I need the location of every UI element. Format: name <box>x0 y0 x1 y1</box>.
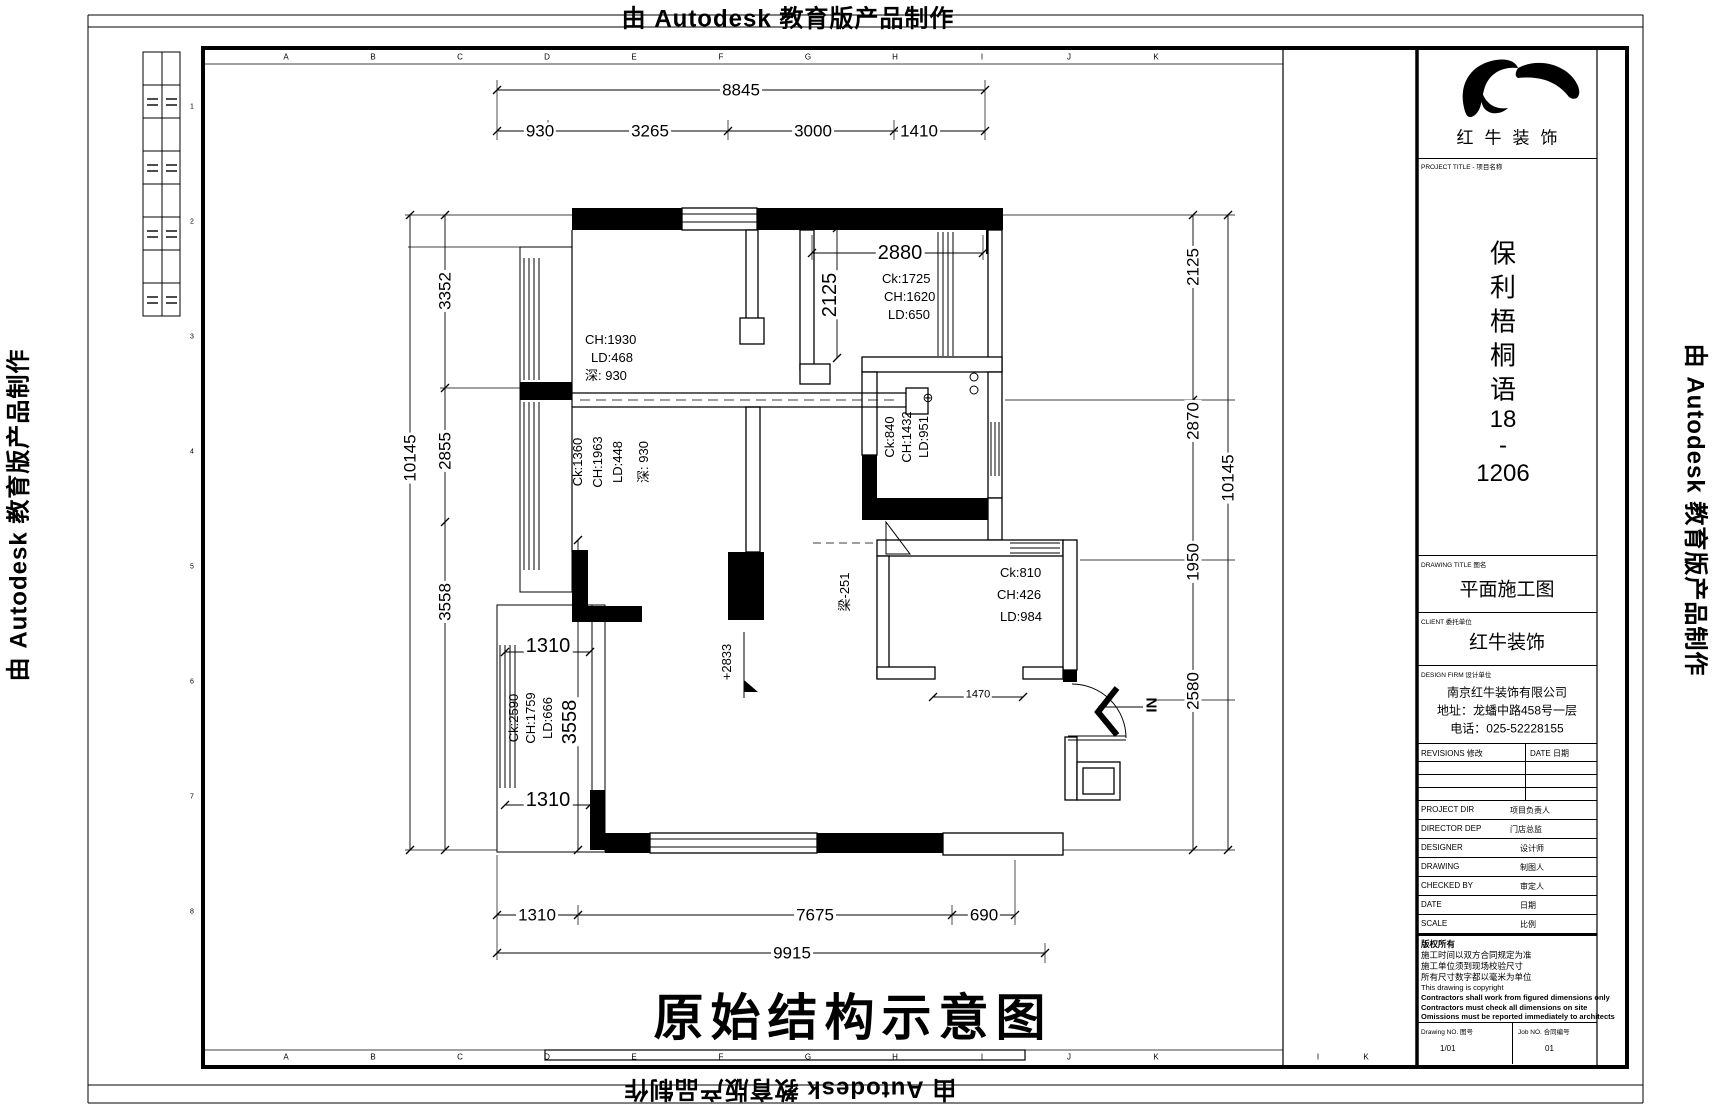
title-underline <box>545 1050 1025 1060</box>
tb-divider <box>1525 743 1526 800</box>
dim-right-total: 10145 <box>1220 452 1237 503</box>
dim-right-seg: 2125 <box>1185 246 1202 288</box>
kitchen-label: LD:650 <box>888 308 930 322</box>
field-cn: 制图人 <box>1520 862 1544 873</box>
room1-label: LD:468 <box>591 351 633 365</box>
entry-in-label: IN <box>1144 698 1161 713</box>
field-label: CHECKED BY <box>1421 881 1473 890</box>
room3-label: LD:984 <box>1000 610 1042 624</box>
tb-line <box>1417 555 1597 556</box>
note-line: 施工单位须到现场校验尺寸 <box>1421 962 1523 971</box>
dim-balcony-bottom: 1310 <box>524 790 573 810</box>
dim-bottom-total: 9915 <box>771 945 813 962</box>
pipe-circles <box>970 373 978 394</box>
room1-label: CH:1930 <box>585 333 636 347</box>
level-label: +2833 <box>720 644 734 681</box>
dim-top-seg: 1410 <box>898 123 940 140</box>
grid-letter: K <box>1363 1053 1368 1062</box>
field-cn: 设计师 <box>1520 843 1544 854</box>
tb-line <box>1417 612 1597 613</box>
dim-bottom-seg: 1310 <box>516 907 558 924</box>
dim-right-seg: 2580 <box>1185 670 1202 712</box>
kitchen-label: Ck:1725 <box>882 272 930 286</box>
design-firm-line: 电话：025-52228155 <box>1450 720 1563 737</box>
tb-line <box>1417 787 1597 788</box>
drawing-title-label: DRAWING TITLE 图名 <box>1421 559 1486 569</box>
room2-label: Ck:1360 <box>571 438 585 486</box>
tb-line <box>1417 800 1597 801</box>
project-name-char: 梧 <box>1490 302 1516 339</box>
field-label: PROJECT DIR <box>1421 805 1474 814</box>
grid-letter: F <box>719 1053 724 1062</box>
project-name-char: 桐 <box>1490 336 1516 373</box>
brand-name: 红牛装饰 <box>1446 124 1569 149</box>
note-line: 施工时间以双方合同规定为准 <box>1421 951 1532 960</box>
note-line: This drawing is copyright <box>1421 984 1504 992</box>
project-name-char: 1206 <box>1476 460 1529 488</box>
note-line: Contractors shall work from figured dime… <box>1421 994 1610 1002</box>
dim-right-seg: 1950 <box>1185 541 1202 583</box>
tb-line-thick <box>1417 933 1597 936</box>
sheet-borders <box>88 15 1643 1103</box>
project-name-char: 保 <box>1490 234 1516 271</box>
grid-letter: E <box>631 1053 636 1062</box>
window-glazing <box>500 214 1060 847</box>
design-firm-line: 地址：龙蟠中路458号一层 <box>1437 702 1577 719</box>
grid-letter: J <box>1067 53 1071 62</box>
wall-lines <box>572 230 906 552</box>
grid-letter: A <box>283 1053 288 1062</box>
design-firm-label: DESIGN FIRM 设计单位 <box>1421 669 1491 679</box>
grid-letter: I <box>1317 1053 1319 1062</box>
bath-symbol: ⊕ <box>923 391 934 405</box>
grid-letter: C <box>457 53 463 62</box>
drawing-no-label: Drawing NO. 图号 <box>1421 1026 1473 1036</box>
grid-letter: H <box>892 1053 898 1062</box>
tb-line <box>1417 761 1597 762</box>
grid-letter: B <box>370 1053 375 1062</box>
grid-letter: J <box>1067 1053 1071 1062</box>
tb-line <box>1417 1022 1597 1023</box>
watermark-bottom: 由 Autodesk 教育版产品制作 <box>624 1075 957 1110</box>
dim-bottom-seg: 690 <box>968 907 1000 924</box>
kitchen-label: CH:1620 <box>884 290 935 304</box>
dim-top-seg: 930 <box>524 123 556 140</box>
bath-label: Ck:840 <box>883 416 897 457</box>
project-name-char: 18 <box>1490 406 1517 434</box>
grid-letter: G <box>805 53 811 62</box>
job-no-value: 01 <box>1545 1044 1554 1053</box>
dim-bottom-seg: 7675 <box>794 907 836 924</box>
dim-balcony-top: 1310 <box>524 636 573 656</box>
entry-door <box>1068 684 1143 740</box>
dim-left-seg: 3558 <box>437 581 454 623</box>
client-label: CLIENT 委托单位 <box>1421 616 1472 626</box>
date-label: DATE 日期 <box>1530 748 1569 759</box>
room3-label: CH:426 <box>997 588 1041 602</box>
client-name: 红牛装饰 <box>1469 628 1545 655</box>
tb-line <box>1417 743 1597 744</box>
balcony-label: LD:666 <box>541 697 555 739</box>
grid-letter: K <box>1153 1053 1158 1062</box>
drawing-title: 平面施工图 <box>1459 575 1554 602</box>
grid-number: 7 <box>190 794 194 801</box>
field-label: DIRECTOR DEP <box>1421 824 1481 833</box>
watermark-top: 由 Autodesk 教育版产品制作 <box>622 0 955 34</box>
note-line: 所有尺寸数字都以毫米为单位 <box>1421 973 1532 982</box>
tb-line <box>1417 774 1597 775</box>
field-cn: 比例 <box>1520 919 1536 930</box>
tb-line <box>1417 914 1597 915</box>
grid-letter: A <box>283 53 288 62</box>
field-cn: 审定人 <box>1520 881 1544 892</box>
field-label: DATE <box>1421 900 1442 909</box>
drawing-sheet: 由 Autodesk 教育版产品制作 由 Autodesk 教育版产品制作 由 … <box>0 0 1723 1115</box>
field-label: SCALE <box>1421 919 1447 928</box>
project-name-char: 语 <box>1490 370 1516 407</box>
bath-label: LD:951 <box>917 416 931 458</box>
grid-number: 3 <box>190 334 194 341</box>
note-line: 版权所有 <box>1421 940 1455 949</box>
grid-number: 6 <box>190 679 194 686</box>
grid-letter: G <box>805 1053 811 1062</box>
grid-letter: K <box>1153 53 1158 62</box>
walls-outline <box>650 208 1120 855</box>
balcony-label: CH:1759 <box>524 692 538 743</box>
revision-strip <box>143 52 180 316</box>
revisions-label: REVISIONS 修改 <box>1421 748 1483 759</box>
watermark-right: 由 Autodesk 教育版产品制作 <box>1681 344 1716 677</box>
note-line: Omissions must be reported immediately t… <box>1421 1013 1615 1021</box>
grid-letter: D <box>544 53 550 62</box>
grid-letter: E <box>631 53 636 62</box>
tb-line <box>1417 895 1597 896</box>
dim-kitchen-width: 2880 <box>876 243 925 263</box>
note-line: Contractors must check all dimensions on… <box>1421 1004 1587 1012</box>
grid-letter: B <box>370 53 375 62</box>
dim-right-seg: 2870 <box>1185 400 1202 442</box>
project-title-label: PROJECT TITLE - 项目名称 <box>1421 161 1502 171</box>
field-label: DESIGNER <box>1421 843 1463 852</box>
tb-line <box>1417 819 1597 820</box>
dim-balcony-height: 3558 <box>560 698 580 747</box>
drawing-no-value: 1/01 <box>1440 1044 1456 1053</box>
field-cn: 项目负责人 <box>1510 805 1550 816</box>
grid-number: 4 <box>190 449 194 456</box>
dim-kitchen-height: 2125 <box>820 271 840 320</box>
grid-number: 5 <box>190 564 194 571</box>
room2-label: LD:448 <box>611 441 625 483</box>
tb-line <box>1417 838 1597 839</box>
dim-top-seg: 3000 <box>792 123 834 140</box>
tb-line <box>1417 876 1597 877</box>
design-firm-line: 南京红牛装饰有限公司 <box>1447 684 1567 701</box>
grid-number: 8 <box>190 909 194 916</box>
grid-letter: H <box>892 53 898 62</box>
dim-left-seg: 2855 <box>437 430 454 472</box>
field-cn: 日期 <box>1520 900 1536 911</box>
room2-label: 深: 930 <box>637 441 651 483</box>
dim-top-seg: 3265 <box>629 123 671 140</box>
tb-line <box>1417 857 1597 858</box>
field-cn: 门店总监 <box>1510 824 1542 835</box>
grid-letter: C <box>457 1053 463 1062</box>
tb-divider <box>1512 1022 1513 1064</box>
room2-label: CH:1963 <box>591 436 605 487</box>
grid-letter: I <box>981 53 983 62</box>
grid-letter: D <box>544 1053 550 1062</box>
bath-label: CH:1432 <box>900 411 914 462</box>
grid-letter: F <box>719 53 724 62</box>
tb-line <box>1417 158 1597 159</box>
brand-logo-icon <box>1463 59 1580 117</box>
project-name-char: 利 <box>1490 268 1516 305</box>
watermark-left: 由 Autodesk 教育版产品制作 <box>0 349 34 682</box>
dim-top-total: 8845 <box>720 82 762 99</box>
job-no-label: Job NO. 合同编号 <box>1518 1026 1570 1036</box>
level-marker <box>744 632 758 698</box>
grid-number: 2 <box>190 219 194 226</box>
tb-line <box>1417 665 1597 666</box>
drawing-main-title: 原始结构示意图 <box>654 978 1053 1050</box>
balcony-label: Ck:2590 <box>507 694 521 742</box>
room1-label: 深: 930 <box>585 369 627 383</box>
dim-left-seg: 3352 <box>437 270 454 312</box>
grid-letter: I <box>981 1053 983 1062</box>
beam-label: 梁-251 <box>838 572 852 611</box>
room3-label: Ck:810 <box>1000 566 1041 580</box>
dim-hall: 1470 <box>964 690 992 701</box>
dim-left-total: 10145 <box>402 432 419 483</box>
project-name-char: - <box>1499 432 1507 460</box>
grid-number: 1 <box>190 104 194 111</box>
field-label: DRAWING <box>1421 862 1459 871</box>
